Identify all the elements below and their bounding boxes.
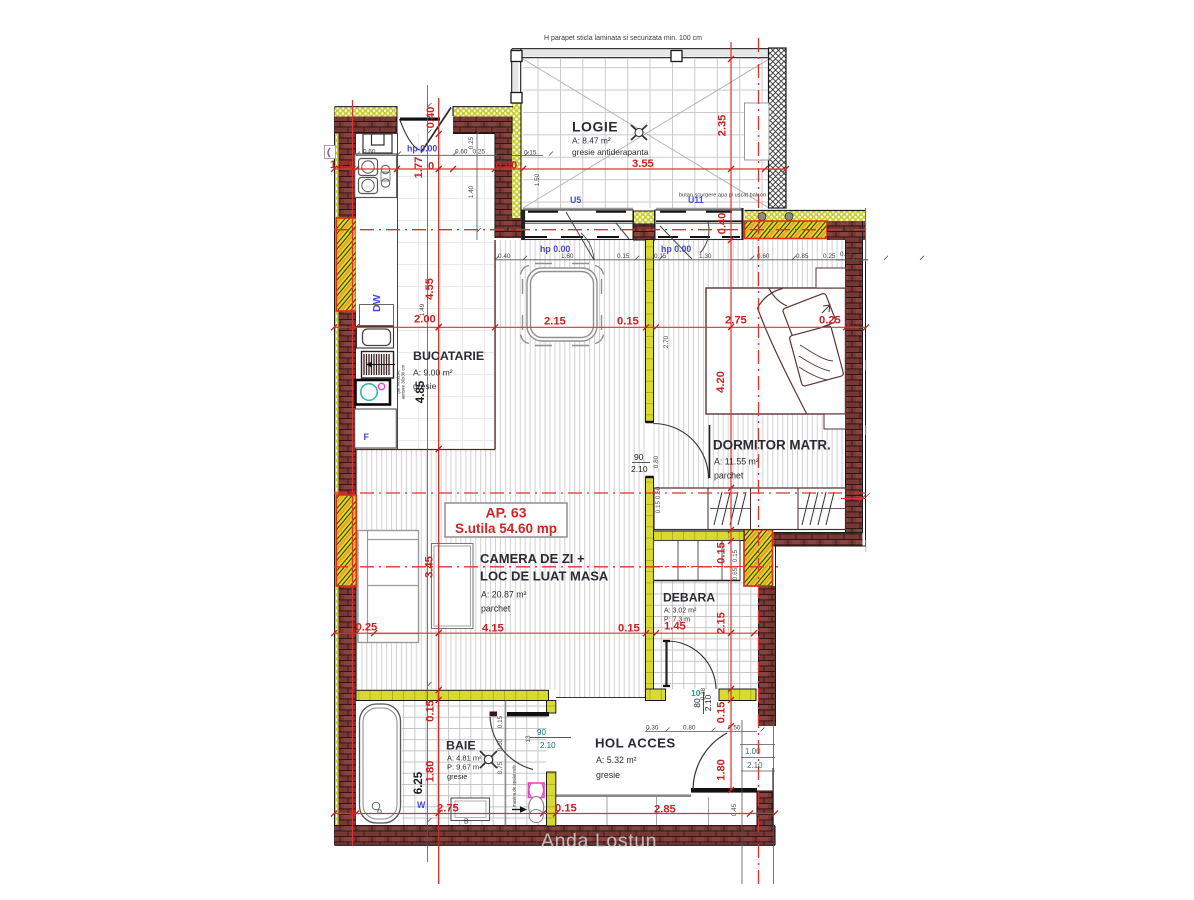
svg-text:A: 4.81 m²: A: 4.81 m² [447,754,482,763]
svg-text:aerisire 30x30 cm: aerisire 30x30 cm [401,364,406,399]
svg-text:A: 8.47 m²: A: 8.47 m² [572,136,611,146]
svg-text:6.25: 6.25 [413,771,425,794]
svg-text:0.25: 0.25 [468,136,475,149]
svg-text:0.60: 0.60 [497,738,504,751]
svg-text:0.15: 0.15 [618,623,640,635]
svg-text:0.15: 0.15 [524,150,537,157]
svg-text:0.15: 0.15 [716,542,728,564]
svg-text:hp 0.00: hp 0.00 [661,244,691,254]
svg-text:1.40: 1.40 [468,185,475,198]
svg-text:gresie antiderapanta: gresie antiderapanta [572,147,649,157]
svg-text:0.25: 0.25 [840,251,853,258]
svg-text:gresie: gresie [413,381,437,391]
svg-text:0.45: 0.45 [731,803,738,816]
svg-text:gresie: gresie [596,770,620,780]
svg-text:90: 90 [634,452,644,462]
svg-text:HOL ACCES: HOL ACCES [595,736,676,751]
svg-text:0.40: 0.40 [425,107,437,129]
svg-text:DW: DW [371,294,383,312]
svg-text:Anda Lostun: Anda Lostun [541,830,657,852]
svg-text:DEBARA: DEBARA [663,591,715,605]
svg-text:0.85: 0.85 [796,253,809,260]
svg-text:F: F [364,432,370,442]
svg-text:BAIE: BAIE [446,739,476,753]
svg-text:1.80: 1.80 [425,761,437,783]
svg-text:2.10: 2.10 [747,761,763,770]
svg-text:0.15: 0.15 [555,803,577,815]
svg-text:0.60: 0.60 [363,149,376,156]
svg-text:0.25: 0.25 [819,315,841,327]
svg-text:0.40: 0.40 [717,213,729,235]
svg-text:A: 20.87 m²: A: 20.87 m² [481,590,527,600]
svg-text:3.45: 3.45 [424,556,436,578]
svg-text:2.75: 2.75 [725,315,747,327]
svg-text:1.50: 1.50 [534,173,541,186]
svg-text:2.35: 2.35 [717,115,729,137]
svg-text:2.85: 2.85 [654,804,676,816]
svg-text:hp 0.00: hp 0.00 [407,144,437,154]
svg-text:3.55: 3.55 [632,158,654,170]
svg-text:0.80: 0.80 [683,725,696,732]
svg-text:0.15: 0.15 [732,549,739,562]
svg-text:parchet: parchet [714,471,744,481]
svg-text:0: 0 [428,161,434,173]
svg-text:0.15: 0.15 [497,715,504,728]
svg-text:gresie: gresie [447,772,467,781]
svg-text:H parapet sticla laminata si s: H parapet sticla laminata si securizata … [544,35,702,42]
svg-text:90: 90 [537,728,546,737]
svg-text:U5: U5 [570,195,581,205]
svg-text:LOGIE: LOGIE [572,119,618,135]
svg-text:BUCATARIE: BUCATARIE [413,349,484,363]
svg-text:masina de spalat rufe: masina de spalat rufe [512,764,517,807]
svg-text:P: 7.3 m: P: 7.3 m [664,617,690,624]
svg-text:0.25: 0.25 [356,622,378,634]
svg-text:80: 80 [692,698,702,708]
svg-text:4.15: 4.15 [482,623,504,635]
svg-text:10: 10 [691,688,701,698]
svg-text:0.30: 0.30 [646,725,659,732]
svg-text:0.15: 0.15 [617,316,639,328]
svg-text:4.20: 4.20 [715,371,727,393]
svg-text:1.30: 1.30 [699,253,712,260]
svg-text:0.40: 0.40 [496,160,518,172]
svg-text:0.75: 0.75 [497,761,504,774]
svg-text:parchet: parchet [481,604,511,614]
svg-text:0.25: 0.25 [823,253,836,260]
svg-text:B: B [464,819,469,826]
svg-text:0.60: 0.60 [455,149,468,156]
svg-text:DORMITOR MATR.: DORMITOR MATR. [713,438,831,453]
svg-text:W: W [417,800,426,810]
svg-text:S.utila 54.60 mp: S.utila 54.60 mp [455,521,557,536]
svg-text:0.15 0.60: 0.15 0.60 [655,486,662,513]
svg-text:2.70: 2.70 [663,335,670,348]
svg-text:A: 3.02 m²: A: 3.02 m² [664,608,697,615]
svg-text:2.15: 2.15 [544,316,566,328]
svg-text:0.15: 0.15 [617,253,630,260]
svg-text:LOC DE LUAT MASA: LOC DE LUAT MASA [480,569,609,584]
svg-text:2.10: 2.10 [540,741,556,750]
svg-text:1.80: 1.80 [716,759,728,781]
svg-text:A: 5.32 m²: A: 5.32 m² [596,755,637,765]
svg-text:A: 11.55 m²: A: 11.55 m² [714,457,759,467]
svg-text:1.25: 1.25 [330,159,352,171]
svg-text:2.75: 2.75 [437,803,459,815]
svg-text:CAMERA DE ZI +: CAMERA DE ZI + [480,551,585,566]
svg-text:P: 9.67 m: P: 9.67 m [447,763,479,772]
svg-text:2.00: 2.00 [414,314,436,326]
svg-text:butan scurgere apa pi uscat ba: butan scurgere apa pi uscat balcon [679,193,766,199]
svg-text:4.55: 4.55 [424,278,436,300]
svg-text:A: 9.00 m²: A: 9.00 m² [413,368,453,378]
svg-text:hp 0.00: hp 0.00 [540,244,570,254]
svg-text:AP. 63: AP. 63 [486,505,527,521]
svg-text:0.80: 0.80 [653,455,660,468]
svg-text:2.10: 2.10 [703,694,713,711]
svg-text:0.15: 0.15 [425,700,437,722]
svg-text:1.77: 1.77 [413,157,425,179]
svg-text:0.65: 0.65 [732,567,739,580]
svg-text:13: 13 [525,735,532,743]
svg-text:0.50: 0.50 [728,725,741,732]
svg-text:2.10: 2.10 [631,464,648,474]
svg-text:0.15: 0.15 [716,702,728,724]
svg-text:2.15: 2.15 [716,612,728,634]
svg-text:0.40: 0.40 [498,253,511,260]
